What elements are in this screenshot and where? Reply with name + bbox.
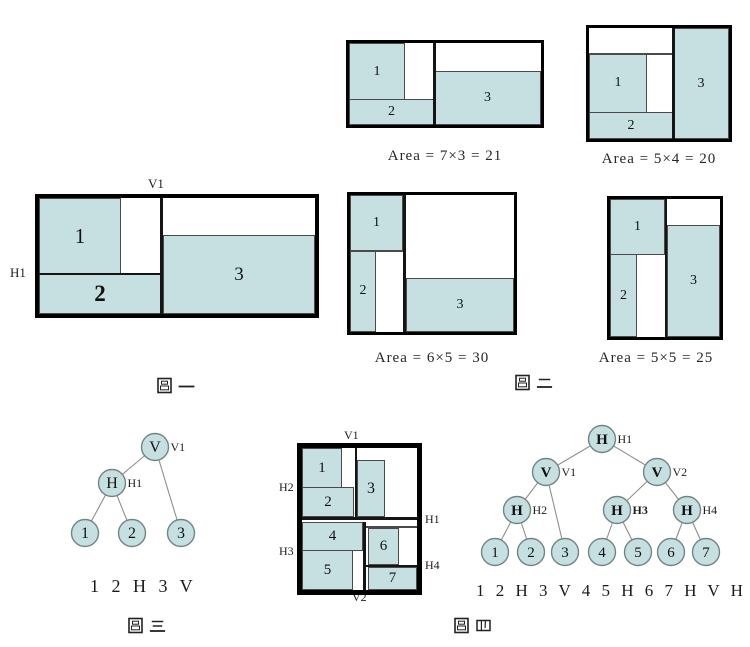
block-3: 3	[163, 235, 315, 314]
tree-node-label: 1	[81, 525, 89, 542]
vertical-cut-line	[672, 28, 675, 139]
block-2: 2	[39, 273, 161, 314]
block-6: 6	[368, 528, 399, 565]
block-3: 3	[357, 460, 385, 517]
block-1: 1	[39, 198, 121, 274]
slicing-tree-large: HH1VV1VV2HH2HH3HH41234567	[478, 418, 748, 570]
block-2: 2	[589, 112, 673, 139]
tree-node-label: H	[511, 503, 523, 519]
cut-label: H1	[128, 476, 143, 490]
cut-label-v1: V1	[344, 428, 359, 443]
cjk-glyph	[149, 617, 166, 634]
cjk-glyph	[475, 617, 492, 634]
horizontal-cut-line-h1	[39, 273, 161, 275]
cut-label: V2	[673, 465, 688, 479]
area-label-6x5: Area = 6×5 = 30	[347, 350, 517, 367]
floorplan-7x3: 1 2 3	[346, 40, 544, 128]
tree-node-label: 3	[561, 545, 569, 561]
horizontal-cut-line	[350, 250, 403, 252]
caption-figure-2	[514, 374, 553, 391]
tree-node-label: V	[149, 439, 161, 456]
tree-node-label: H	[596, 432, 608, 448]
cjk-glyph	[127, 617, 144, 634]
tree-node-label: V	[541, 465, 552, 481]
tree-node-label: H	[681, 503, 693, 519]
block-3: 3	[406, 278, 514, 332]
block-1: 1	[349, 43, 405, 100]
cut-label-h1: H1	[10, 265, 26, 281]
tree-node-label: H	[106, 475, 118, 492]
cut-label: H4	[703, 503, 718, 517]
slicing-tree-small: VV1HH1123	[55, 420, 225, 560]
document-canvas: 1 2 3 Area = 7×3 = 21 1 2 3 Area = 5×4 =…	[0, 0, 750, 647]
horizontal-cut-line	[589, 53, 673, 55]
tree-node-label: 4	[598, 545, 606, 561]
area-label-5x4: Area = 5×4 = 20	[586, 151, 732, 168]
tree-node-label: V	[652, 465, 663, 481]
block-3: 3	[667, 225, 720, 337]
caption-figure-1	[156, 377, 195, 394]
caption-figure-4	[453, 617, 492, 634]
area-label-5x5: Area = 5×5 = 25	[583, 350, 729, 367]
area-label-7x3: Area = 7×3 = 21	[346, 148, 544, 165]
cut-label-h3: H3	[279, 544, 294, 559]
caption-figure-3	[127, 617, 166, 634]
horizontal-cut-line-h1	[302, 517, 417, 520]
block-3: 3	[673, 28, 729, 139]
vertical-cut-line-v2	[363, 522, 366, 590]
tree-node-label: 5	[634, 545, 642, 561]
tree-node-label: 1	[491, 545, 499, 561]
tree-node-label: 7	[702, 545, 710, 561]
floorplan-6x5: 1 2 3	[347, 192, 517, 335]
cut-label: H3	[633, 503, 648, 517]
block-1: 1	[589, 53, 647, 113]
cut-label: H1	[618, 432, 633, 446]
floorplan-figure4: 1 2 3 4 5 6 7	[297, 443, 422, 595]
block-2: 2	[610, 254, 637, 337]
block-4: 4	[302, 522, 363, 551]
vertical-cut-line	[433, 43, 436, 125]
cut-label: V1	[562, 465, 577, 479]
polish-expression-large: 1 2 H 3 V 4 5 H 6 7 H V H	[476, 581, 746, 601]
vertical-cut-line	[665, 199, 668, 337]
polish-expression-small: 1 2 H 3 V	[90, 576, 197, 597]
cut-label-v1: V1	[148, 176, 164, 192]
floorplan-figure1: 1 2 3	[35, 194, 319, 318]
tree-node-label: 2	[527, 545, 535, 561]
block-2: 2	[349, 99, 434, 125]
tree-node-label: 6	[667, 545, 675, 561]
vertical-cut-line-v1	[355, 448, 358, 517]
block-5: 5	[302, 550, 353, 590]
tree-node-label: 2	[128, 525, 136, 542]
cut-label-h4: H4	[425, 558, 440, 573]
tree-node-label: H	[611, 503, 623, 519]
cut-label: H2	[533, 503, 548, 517]
block-3: 3	[434, 71, 541, 125]
block-2: 2	[350, 250, 376, 332]
block-1: 1	[302, 448, 342, 488]
vertical-cut-line	[403, 195, 406, 332]
cut-label-h1: H1	[425, 512, 440, 527]
block-2: 2	[302, 487, 354, 517]
block-1: 1	[350, 195, 403, 251]
cjk-glyph	[453, 617, 470, 634]
cjk-glyph	[156, 377, 173, 394]
vertical-cut-line-v1	[160, 198, 163, 314]
block-7: 7	[368, 567, 417, 590]
cut-label-h2: H2	[279, 480, 294, 495]
floorplan-5x4: 1 2 3	[586, 25, 732, 142]
cjk-glyph	[178, 377, 195, 394]
tree-node-label: 3	[177, 525, 185, 542]
cjk-glyph	[514, 374, 531, 391]
cut-label: V1	[171, 440, 186, 454]
cjk-glyph	[536, 374, 553, 391]
floorplan-5x5: 1 2 3	[607, 196, 723, 340]
block-1: 1	[610, 199, 665, 255]
